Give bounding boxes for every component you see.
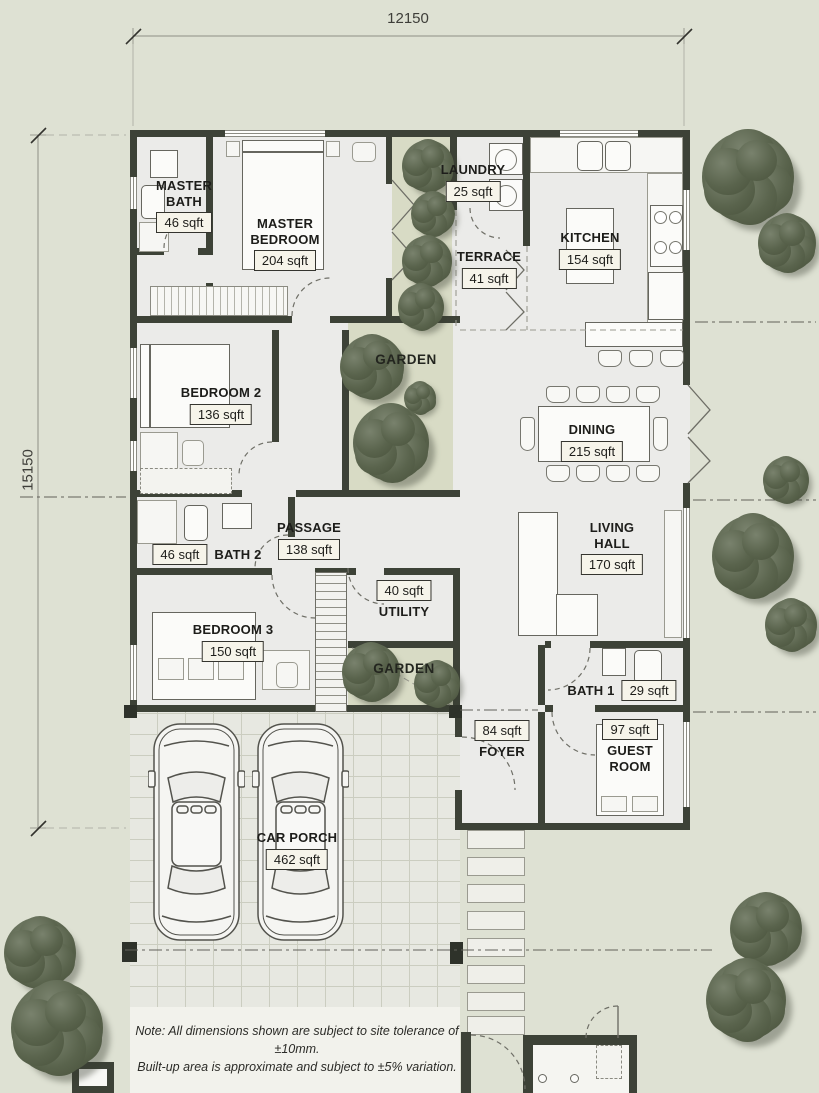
- stepping-stone: [467, 884, 525, 903]
- pillow: [601, 796, 627, 812]
- tree-icon: [730, 893, 802, 965]
- tv-console: [664, 510, 682, 638]
- window: [683, 190, 690, 250]
- dining-chair: [606, 386, 630, 403]
- area-box: 462 sqft: [266, 849, 328, 870]
- bed-headboard: [140, 344, 150, 428]
- floor-plan-canvas: 12150 15150 MASTER BATH 46 sqft MASTER B…: [0, 0, 819, 1093]
- stove-burner: [669, 241, 682, 254]
- room-label-bath-2: 46 sqft BATH 2: [152, 544, 261, 565]
- wall: [130, 130, 137, 712]
- tree-icon: [402, 236, 452, 286]
- tree-icon: [706, 960, 786, 1040]
- room-label-laundry: LAUNDRY 25 sqft: [441, 162, 505, 202]
- room-label-master-bedroom: MASTER BEDROOM 204 sqft: [242, 216, 328, 271]
- bar-stool: [660, 350, 684, 367]
- wall: [348, 568, 356, 575]
- column: [122, 942, 137, 962]
- room-label-bedroom-3: BEDROOM 3 150 sqft: [193, 622, 274, 662]
- room-name: BATH 2: [214, 547, 261, 563]
- wall: [683, 483, 690, 508]
- nightstand: [326, 141, 340, 157]
- room-name: CAR PORCH: [257, 830, 338, 846]
- sink: [602, 648, 626, 676]
- dining-chair: [636, 465, 660, 482]
- room-label-garden-2: GARDEN: [373, 661, 435, 676]
- bar-counter: [585, 322, 683, 347]
- room-name: GUEST ROOM: [602, 743, 658, 774]
- column: [450, 942, 463, 964]
- toilet: [634, 650, 662, 684]
- chair: [276, 662, 298, 688]
- area-box: 154 sqft: [559, 249, 621, 270]
- area-box: 25 sqft: [445, 181, 500, 202]
- window: [130, 441, 137, 471]
- gate-wall: [629, 1035, 637, 1093]
- dining-chair: [606, 465, 630, 482]
- room-label-guest-room: 97 sqft GUEST ROOM: [602, 719, 658, 774]
- tree-icon: [4, 917, 76, 989]
- nightstand: [226, 141, 240, 157]
- meter-box: [596, 1045, 622, 1079]
- stepping-stone: [467, 965, 525, 984]
- dining-chair: [576, 465, 600, 482]
- area-box: 41 sqft: [461, 268, 516, 289]
- wall: [523, 136, 530, 246]
- stepping-stone: [467, 938, 525, 957]
- room-name: MASTER BEDROOM: [242, 216, 328, 247]
- wall: [198, 248, 213, 255]
- wall: [130, 568, 272, 575]
- tree-icon: [712, 515, 794, 597]
- stepping-stone: [467, 1016, 525, 1035]
- window: [130, 348, 137, 398]
- wall: [272, 330, 279, 442]
- window: [560, 130, 638, 137]
- room-name: BATH 1: [567, 683, 614, 699]
- window: [225, 130, 325, 137]
- column: [124, 705, 137, 718]
- wall: [595, 705, 690, 712]
- room-name: TERRACE: [457, 249, 521, 265]
- tree-icon: [340, 335, 404, 399]
- room-name: PASSAGE: [277, 520, 341, 536]
- room-label-kitchen: KITCHEN 154 sqft: [559, 230, 621, 270]
- chair: [182, 440, 204, 466]
- room-label-passage: PASSAGE 138 sqft: [277, 520, 341, 560]
- fridge: [648, 272, 684, 320]
- room-label-car-porch: CAR PORCH 462 sqft: [257, 830, 338, 870]
- room-name: GARDEN: [375, 352, 437, 367]
- stove-burner: [654, 241, 667, 254]
- stepping-stone: [467, 992, 525, 1011]
- sofa: [518, 512, 558, 636]
- room-label-bedroom-2: BEDROOM 2 136 sqft: [181, 385, 262, 425]
- area-box: 84 sqft: [474, 720, 529, 741]
- wall: [545, 641, 551, 648]
- tree-icon: [765, 599, 817, 651]
- window: [683, 508, 690, 638]
- room-name: LIVING HALL: [584, 520, 640, 551]
- wall: [545, 705, 553, 712]
- bar-stool: [629, 350, 653, 367]
- room-label-utility: 40 sqft UTILITY: [376, 580, 431, 620]
- shower: [137, 500, 177, 544]
- bed-headboard: [242, 140, 324, 152]
- area-box: 215 sqft: [561, 441, 623, 462]
- kitchen-sink: [605, 141, 631, 171]
- room-label-dining: DINING 215 sqft: [561, 422, 623, 462]
- room-name: MASTER BATH: [151, 178, 217, 209]
- window: [130, 645, 137, 700]
- stove-burner: [669, 211, 682, 224]
- area-box: 29 sqft: [622, 680, 677, 701]
- wall: [538, 712, 545, 830]
- room-label-terrace: TERRACE 41 sqft: [457, 249, 521, 289]
- room-label-master-bath: MASTER BATH 46 sqft: [151, 178, 217, 233]
- sink: [150, 150, 178, 178]
- dining-chair: [576, 386, 600, 403]
- wall: [386, 278, 392, 323]
- wall: [130, 705, 460, 712]
- window: [683, 722, 690, 807]
- room-name: FOYER: [479, 744, 525, 760]
- toilet: [184, 505, 208, 541]
- room-name: BEDROOM 3: [193, 622, 274, 638]
- stove-burner: [654, 211, 667, 224]
- wall: [683, 250, 690, 385]
- room-label-living-hall: LIVING HALL 170 sqft: [581, 520, 643, 575]
- room-name: UTILITY: [379, 604, 430, 620]
- room-name: DINING: [569, 422, 616, 438]
- room-name: KITCHEN: [560, 230, 619, 246]
- stepping-stone: [467, 830, 525, 849]
- room-label-garden-1: GARDEN: [375, 352, 437, 367]
- room-name: GARDEN: [373, 661, 435, 676]
- note-line-1: Note: All dimensions shown are subject t…: [132, 1022, 462, 1058]
- gate-wall: [523, 1035, 533, 1093]
- bollard: [538, 1074, 547, 1083]
- room-name: BEDROOM 2: [181, 385, 262, 401]
- window: [130, 177, 137, 209]
- area-box: 97 sqft: [602, 719, 657, 740]
- area-box: 170 sqft: [581, 554, 643, 575]
- cushion: [158, 658, 184, 680]
- tree-icon: [11, 982, 103, 1074]
- kitchen-sink: [577, 141, 603, 171]
- dining-chair: [546, 465, 570, 482]
- room-label-bath-1: BATH 1 29 sqft: [567, 680, 676, 701]
- wardrobe: [150, 286, 288, 316]
- wall: [296, 490, 348, 497]
- tree-icon: [763, 457, 809, 503]
- gate-wall: [523, 1035, 637, 1045]
- dining-chair: [653, 417, 668, 451]
- dimension-top: 12150: [387, 10, 429, 27]
- wall: [130, 316, 292, 323]
- area-box: 204 sqft: [254, 250, 316, 271]
- dining-chair: [520, 417, 535, 451]
- dining-chair: [636, 386, 660, 403]
- tree-icon: [758, 214, 816, 272]
- wall: [348, 490, 460, 497]
- stepping-stone: [467, 911, 525, 930]
- area-box: 46 sqft: [156, 212, 211, 233]
- area-box: 40 sqft: [376, 580, 431, 601]
- tree-icon: [353, 405, 429, 481]
- wall: [683, 130, 690, 190]
- room-name: LAUNDRY: [441, 162, 505, 178]
- wall: [455, 790, 462, 830]
- area-box: 46 sqft: [152, 544, 207, 565]
- room-label-foyer: 84 sqft FOYER: [474, 720, 529, 760]
- chair: [352, 142, 376, 162]
- area-box: 136 sqft: [190, 404, 252, 425]
- note-line-2: Built-up area is approximate and subject…: [132, 1058, 462, 1076]
- area-box: 150 sqft: [202, 641, 264, 662]
- wardrobe: [140, 468, 232, 494]
- gate-post: [461, 1032, 471, 1093]
- wall: [384, 568, 460, 575]
- car-top-view: [148, 716, 245, 946]
- area-box: 138 sqft: [278, 539, 340, 560]
- wall: [460, 823, 690, 830]
- tolerance-note: Note: All dimensions shown are subject t…: [132, 1022, 462, 1076]
- dimension-left: 15150: [20, 449, 37, 491]
- stepping-stone: [467, 857, 525, 876]
- sofa-chaise: [556, 594, 598, 636]
- pillow: [632, 796, 658, 812]
- tree-icon: [702, 131, 794, 223]
- tree-icon: [398, 284, 444, 330]
- wall: [538, 645, 545, 705]
- bar-stool: [598, 350, 622, 367]
- bollard: [570, 1074, 579, 1083]
- sink: [222, 503, 252, 529]
- wall: [386, 136, 392, 184]
- dining-chair: [546, 386, 570, 403]
- wall: [590, 641, 690, 648]
